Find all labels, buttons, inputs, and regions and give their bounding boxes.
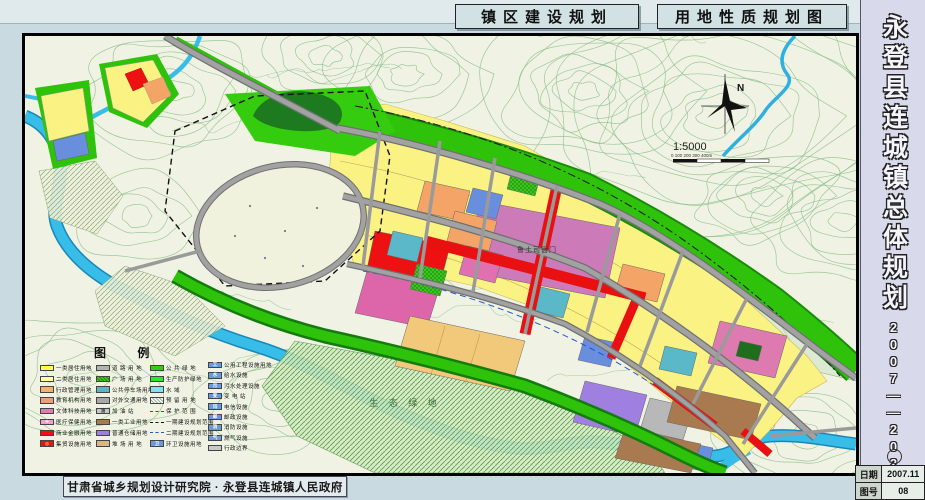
table-row: 图号 08 xyxy=(856,483,925,500)
drawing-title-vertical: 永登县连城镇总体规划 xyxy=(876,14,912,314)
date-label: 日期 xyxy=(856,466,882,483)
eco-green-label: 生 态 绿 地 xyxy=(369,397,441,408)
seal-icon xyxy=(887,449,902,464)
table-row: 日期 2007.11 xyxy=(856,466,925,483)
planning-map: N 1:5000 0 100 200 300 400m 鲁土司衙门 生 态 绿 … xyxy=(22,33,859,476)
date-value: 2007.11 xyxy=(882,466,925,483)
sheet-title-right: 用地性质规划图 xyxy=(657,4,847,29)
compass: N xyxy=(701,74,749,134)
title-block: 永登县连城镇总体规划 2007——2020 xyxy=(860,0,925,500)
scale-ticks: 0 100 200 300 400m xyxy=(671,153,713,158)
scale-text: 1:5000 xyxy=(673,141,707,153)
plan-sheet: 镇区建设规划 用地性质规划图 xyxy=(0,0,925,500)
map-canvas: N 1:5000 0 100 200 300 400m 鲁土司衙门 生 态 绿 … xyxy=(25,36,856,473)
sheet-no-label: 图号 xyxy=(856,483,882,500)
north-label: N xyxy=(737,83,744,94)
heritage-label: 鲁土司衙门 xyxy=(517,245,557,254)
credit-box: 甘肃省城乡规划设计研究院 · 永登县连城镇人民政府 xyxy=(63,476,347,497)
drawing-info-table: 日期 2007.11 图号 08 xyxy=(855,465,925,500)
sheet-no-value: 08 xyxy=(882,483,925,500)
scale-bar: 1:5000 0 100 200 300 400m xyxy=(671,141,769,163)
sheet-title-left: 镇区建设规划 xyxy=(455,4,639,29)
